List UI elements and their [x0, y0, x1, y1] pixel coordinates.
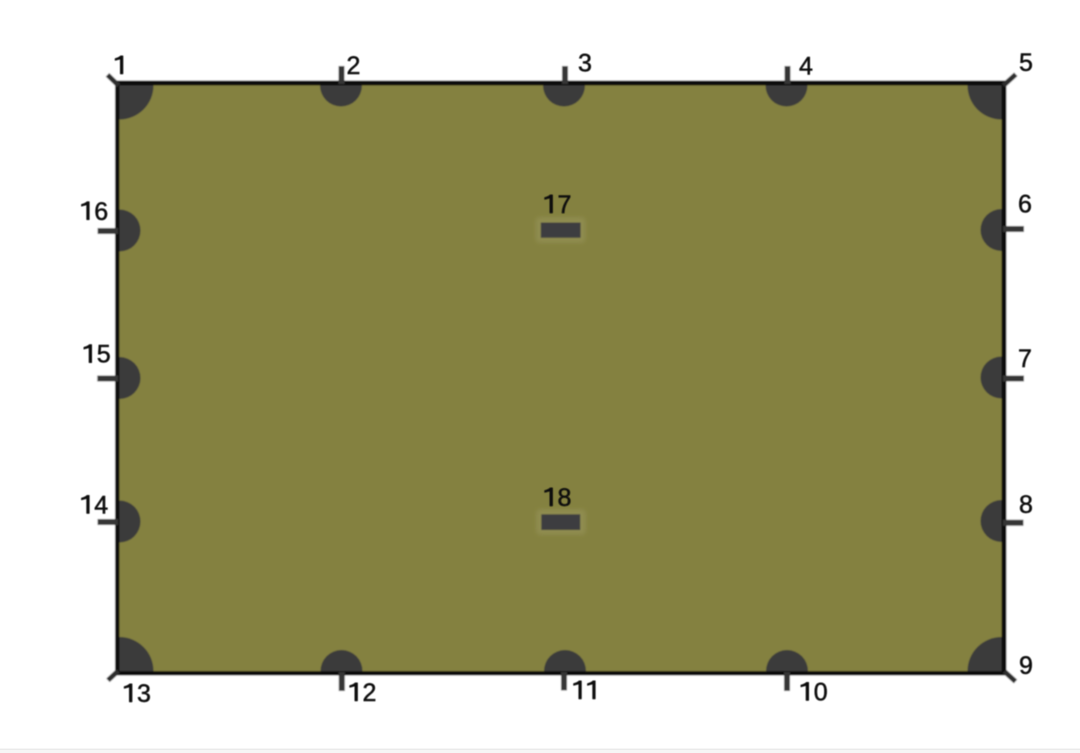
svg-text:2: 2 [362, 679, 376, 707]
svg-text:5: 5 [1019, 49, 1033, 77]
svg-text:3: 3 [137, 680, 151, 708]
svg-text:2: 2 [347, 52, 361, 80]
svg-text:7: 7 [557, 191, 571, 219]
svg-text:9: 9 [1019, 652, 1033, 680]
svg-text:0: 0 [814, 679, 828, 707]
svg-text:8: 8 [557, 484, 571, 512]
svg-text:3: 3 [578, 50, 592, 78]
svg-text:7: 7 [1018, 345, 1032, 373]
svg-text:8: 8 [1019, 491, 1033, 519]
svg-text:5: 5 [97, 341, 111, 369]
svg-text:4: 4 [94, 492, 108, 520]
svg-text:6: 6 [1018, 191, 1032, 219]
svg-text:4: 4 [799, 53, 813, 81]
svg-text:6: 6 [94, 198, 108, 226]
